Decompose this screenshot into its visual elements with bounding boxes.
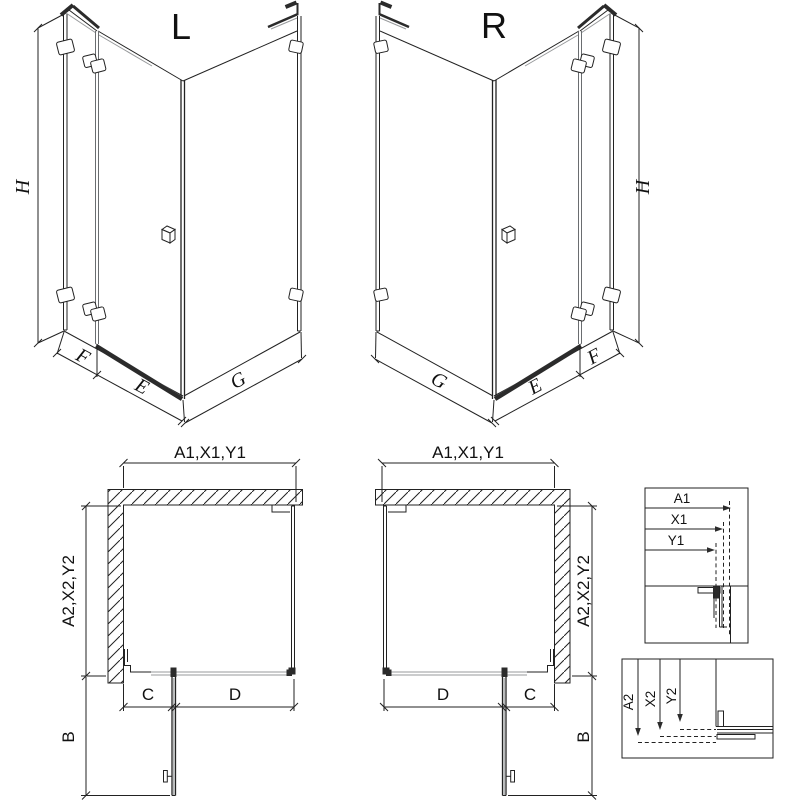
plan-left-depth-label: A2,X2,Y2 <box>59 555 78 627</box>
detail-box-width: A1 X1 Y1 <box>645 488 748 643</box>
detail-a2-label: A2 <box>621 694 636 711</box>
plan-right-depth-label: A2,X2,Y2 <box>574 555 593 627</box>
detail-x1-label: X1 <box>671 512 688 527</box>
detail-x2-label: X2 <box>643 691 658 708</box>
corner-profile-section <box>698 586 731 643</box>
wall-hatch-right-plan <box>376 490 571 684</box>
dim-label-e-left: E <box>130 374 152 400</box>
dim-label-f-left: F <box>71 344 94 370</box>
plan-right-b-label: B <box>574 731 593 742</box>
arrowhead-down-icon <box>677 714 683 722</box>
wall-hatch-left-plan <box>108 490 303 684</box>
plan-view-left: A1,X1,Y1 A2,X2,Y2 C D B <box>59 443 303 800</box>
dim-label-e-right: E <box>524 374 546 400</box>
detail-a1-label: A1 <box>674 491 691 506</box>
plan-left-b-label: B <box>59 731 78 742</box>
plan-right-width-label: A1,X1,Y1 <box>432 443 504 462</box>
dim-label-h-right: H <box>632 178 654 195</box>
technical-drawing-page: L H F E G R H F E G A1,X1,Y1 A2,X2,Y2 C … <box>0 0 800 800</box>
corner-profile-section <box>716 659 773 739</box>
arrowhead-right-icon <box>715 526 723 532</box>
dim-label-g-left: G <box>227 367 251 393</box>
dim-label-f-right: F <box>583 344 606 370</box>
plan-left-width-label: A1,X1,Y1 <box>174 443 246 462</box>
arrowhead-down-icon <box>657 722 663 730</box>
dim-label-h-left: H <box>12 178 34 195</box>
iso-left-title: L <box>171 6 191 47</box>
plan-view-right: A1,X1,Y1 A2,X2,Y2 D C B <box>376 443 598 800</box>
detail-y1-label: Y1 <box>668 533 685 548</box>
iso-view-right: R H F E G <box>371 3 654 428</box>
plan-left-c-label: C <box>142 685 154 704</box>
arrowhead-down-icon <box>635 728 641 736</box>
plan-right-d-label: D <box>437 685 449 704</box>
detail-y2-label: Y2 <box>664 688 679 705</box>
shower-enclosure-diagram: L H F E G R H F E G A1,X1,Y1 A2,X2,Y2 C … <box>0 0 800 800</box>
plan-right-c-label: C <box>524 685 536 704</box>
detail-box-depth: A2 X2 Y2 <box>621 659 773 758</box>
plan-left-d-label: D <box>229 685 241 704</box>
arrowhead-right-icon <box>707 547 715 553</box>
iso-right-title: R <box>481 5 507 46</box>
iso-view-left: L H F E G <box>12 3 306 428</box>
